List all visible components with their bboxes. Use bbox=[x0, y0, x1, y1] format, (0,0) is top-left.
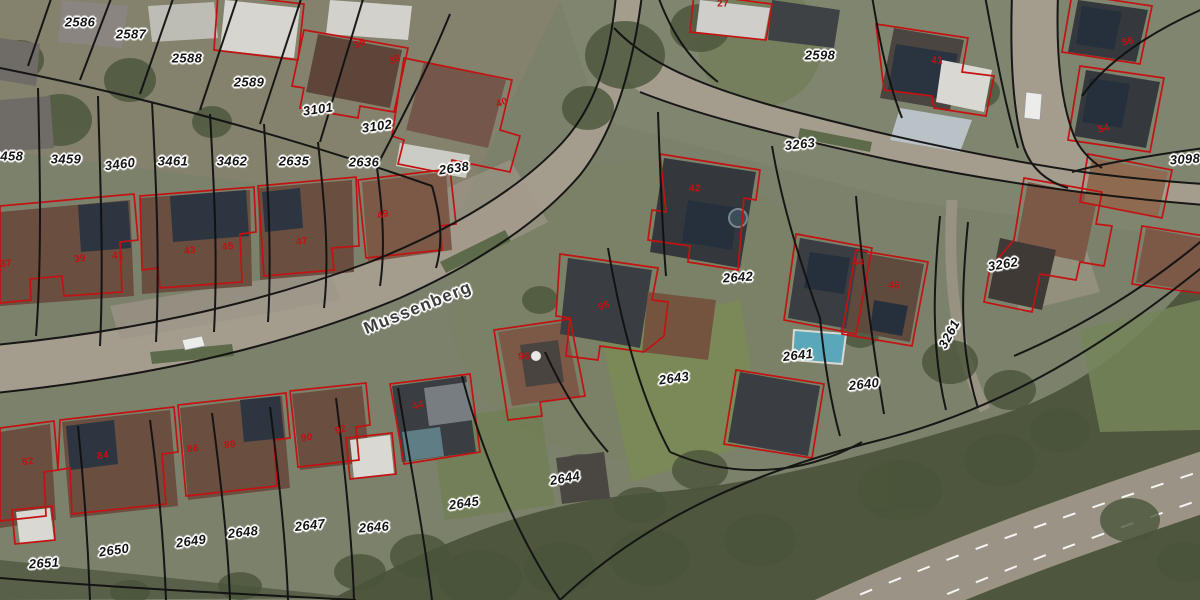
house-number-label: 45 bbox=[221, 241, 234, 254]
street-name-label: Mussenberg bbox=[361, 277, 475, 339]
parcel-label-2647: 2647 bbox=[294, 516, 326, 534]
parcel-label-2642: 2642 bbox=[722, 268, 754, 285]
parcel-label-3459: 3459 bbox=[51, 152, 82, 167]
house-number-label: 96 bbox=[518, 352, 530, 363]
parcel-label-3262: 3262 bbox=[987, 254, 1020, 274]
parcel-label-3461: 3461 bbox=[158, 154, 189, 169]
parcel-label-2636: 2636 bbox=[349, 155, 380, 170]
parcel-label-2589: 2589 bbox=[234, 75, 265, 90]
house-number-label: 36 bbox=[352, 37, 367, 52]
parcel-label-2641: 2641 bbox=[782, 346, 814, 364]
parcel-label-2643: 2643 bbox=[658, 368, 690, 387]
house-number-label: 41 bbox=[931, 56, 943, 67]
parcel-label-2587: 2587 bbox=[116, 27, 147, 42]
house-number-label: 49 bbox=[376, 208, 391, 222]
parcel-label-3263: 3263 bbox=[784, 135, 816, 153]
map-canvas[interactable]: 2586258725882589310131022598326330983458… bbox=[0, 0, 1200, 600]
parcel-label-2651: 2651 bbox=[28, 554, 60, 571]
house-number-label: 37 bbox=[0, 258, 13, 271]
parcel-label-2650: 2650 bbox=[98, 540, 130, 559]
parcel-label-3460: 3460 bbox=[104, 155, 136, 174]
parcel-label-3261: 3261 bbox=[935, 317, 963, 351]
parcel-label-2646: 2646 bbox=[358, 518, 390, 535]
parcel-label-2644: 2644 bbox=[549, 468, 582, 488]
house-number-label: 90 bbox=[300, 432, 313, 445]
house-number-label: 92 bbox=[334, 423, 349, 437]
house-number-label: 56 bbox=[1121, 35, 1135, 49]
parcel-label-2649: 2649 bbox=[175, 531, 207, 550]
house-number-label: 82 bbox=[21, 456, 34, 469]
house-number-label: 88 bbox=[223, 439, 236, 452]
house-number-label: 40 bbox=[495, 96, 510, 110]
parcel-label-2638: 2638 bbox=[438, 158, 470, 177]
house-number-label: 39 bbox=[73, 253, 86, 266]
parcel-label-3458: 3458 bbox=[0, 149, 23, 164]
parcel-label-2640: 2640 bbox=[848, 375, 880, 393]
house-number-label: 41 bbox=[111, 250, 124, 263]
parcel-label-3462: 3462 bbox=[217, 154, 248, 169]
parcel-label-2598: 2598 bbox=[805, 48, 836, 63]
house-number-label: 43 bbox=[183, 245, 196, 258]
parcel-label-2648: 2648 bbox=[227, 523, 259, 541]
house-number-label: 27 bbox=[717, 0, 729, 10]
house-number-label: 38 bbox=[387, 53, 402, 68]
parcel-label-2645: 2645 bbox=[448, 493, 480, 512]
parcel-label-2635: 2635 bbox=[279, 154, 310, 169]
parcel-label-3102: 3102 bbox=[361, 116, 393, 135]
house-number-label: 98 bbox=[597, 299, 612, 313]
house-number-label: 84 bbox=[96, 450, 109, 463]
parcel-label-2588: 2588 bbox=[172, 51, 203, 66]
house-number-label: 42 bbox=[689, 184, 701, 195]
house-number-label: 44 bbox=[852, 258, 864, 269]
parcel-label-2586: 2586 bbox=[65, 15, 96, 30]
parcel-label-3101: 3101 bbox=[302, 99, 334, 118]
house-number-label: 46 bbox=[888, 281, 900, 292]
house-number-label: 86 bbox=[186, 443, 199, 456]
house-number-label: 54 bbox=[1097, 122, 1111, 136]
label-layer: 2586258725882589310131022598326330983458… bbox=[0, 0, 1200, 600]
parcel-label-3098: 3098 bbox=[1169, 150, 1200, 167]
house-number-label: 47 bbox=[295, 236, 308, 249]
house-number-label: 44 bbox=[411, 399, 425, 413]
